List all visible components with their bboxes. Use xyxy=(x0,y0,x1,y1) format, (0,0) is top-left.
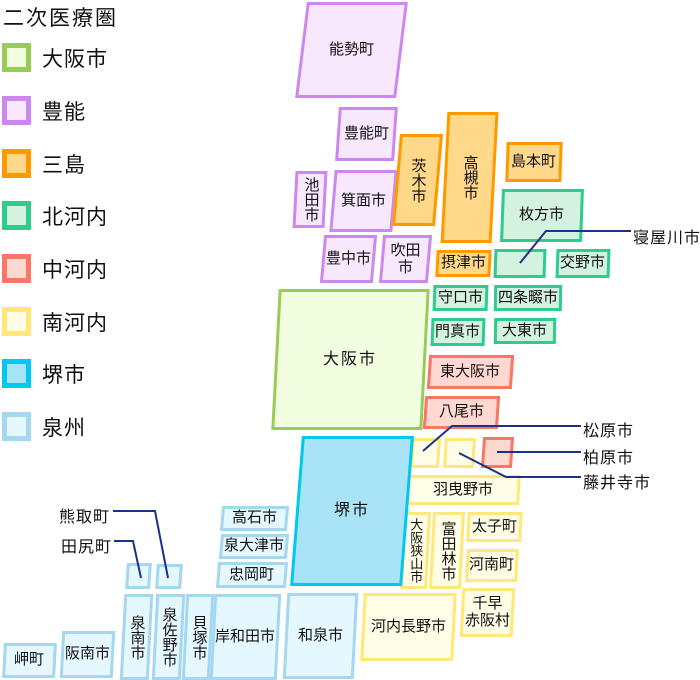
municipality-label: 枚方市 xyxy=(519,207,564,224)
municipality-label: 泉南市 xyxy=(128,615,145,660)
municipality-shimamoto[interactable]: 島本町 xyxy=(505,142,562,182)
municipality-takaishi[interactable]: 高石市 xyxy=(220,506,289,531)
municipality-label: 豊中市 xyxy=(326,251,371,268)
municipality-label: 貝塚市 xyxy=(190,615,207,660)
municipality-habikino[interactable]: 羽曳野市 xyxy=(406,475,521,505)
municipality-katano[interactable]: 交野市 xyxy=(555,249,610,278)
legend-swatch-osaka xyxy=(2,43,31,72)
legend-item-nakakawachi: 中河内 xyxy=(2,254,108,283)
municipality-label: 豊能町 xyxy=(344,126,389,143)
municipality-izumisano[interactable]: 泉佐野市 xyxy=(152,594,186,680)
municipality-label: 四条畷市 xyxy=(498,290,558,307)
municipality-label: 門真市 xyxy=(435,324,480,341)
callout-label-kashiwara: 柏原市 xyxy=(583,444,634,468)
legend-label: 大阪市 xyxy=(42,43,108,73)
legend-swatch-toyono xyxy=(2,96,31,125)
municipality-fujiidera[interactable] xyxy=(443,438,476,468)
municipality-settsu[interactable]: 摂津市 xyxy=(435,250,491,277)
municipality-label: 忠岡町 xyxy=(229,567,274,584)
municipality-kashiwara[interactable] xyxy=(481,437,514,468)
municipality-daito[interactable]: 大東市 xyxy=(494,318,556,344)
municipality-label: 箕面市 xyxy=(341,193,386,210)
municipality-shijonawate[interactable]: 四条畷市 xyxy=(494,285,562,311)
municipality-neyagawa[interactable] xyxy=(493,249,546,278)
municipality-osaka-city[interactable]: 大阪市 xyxy=(271,289,429,430)
municipality-minoh[interactable]: 箕面市 xyxy=(329,170,397,232)
municipality-label: 八尾市 xyxy=(439,404,484,421)
legend-label: 三島 xyxy=(42,149,86,179)
municipality-label: 能勢町 xyxy=(329,42,374,59)
legend-swatch-sakai xyxy=(2,359,31,388)
legend-item-osaka: 大阪市 xyxy=(2,43,108,72)
municipality-label: 太子町 xyxy=(472,519,517,536)
municipality-hirakata[interactable]: 枚方市 xyxy=(500,189,584,242)
municipality-label: 羽曳野市 xyxy=(433,482,493,499)
legend-swatch-mishima xyxy=(2,149,31,178)
municipality-sakai-city[interactable]: 堺市 xyxy=(290,436,414,586)
legend-item-kitakawachi: 北河内 xyxy=(2,201,108,230)
legend-label: 堺市 xyxy=(42,359,86,389)
municipality-kumatori[interactable] xyxy=(155,564,183,589)
municipality-label: 池田市 xyxy=(302,177,319,222)
municipality-kawachinagano[interactable]: 河内長野市 xyxy=(360,593,457,661)
municipality-label: 河内長野市 xyxy=(371,619,446,636)
legend-label: 中河内 xyxy=(42,254,108,284)
municipality-label: 守口市 xyxy=(438,290,483,307)
municipality-ibaraki[interactable]: 茨木市 xyxy=(392,134,443,226)
municipality-label: 富田林市 xyxy=(439,521,456,581)
callout-label-fujiidera: 藤井寺市 xyxy=(583,469,651,493)
municipality-taishi[interactable]: 太子町 xyxy=(466,512,523,542)
municipality-kadoma[interactable]: 門真市 xyxy=(431,318,486,346)
municipality-matsubara[interactable] xyxy=(410,438,441,468)
callout-label-tajiri: 田尻町 xyxy=(61,533,112,557)
legend-label: 北河内 xyxy=(42,201,108,231)
municipality-label: 岬町 xyxy=(14,652,44,669)
municipality-chihayaakasaka[interactable]: 千早 赤阪村 xyxy=(460,588,516,637)
municipality-label: 千早 赤阪村 xyxy=(465,596,510,629)
municipality-tajiri[interactable] xyxy=(125,563,152,589)
municipality-label: 堺市 xyxy=(334,502,370,520)
municipality-label: 吹田市 xyxy=(384,243,427,276)
municipality-tadaoka[interactable]: 忠岡町 xyxy=(216,562,288,588)
municipality-kishiwada[interactable]: 岸和田市 xyxy=(210,594,282,680)
municipality-label: 島本町 xyxy=(511,154,556,171)
legend-item-sakai: 堺市 xyxy=(2,359,86,388)
legend-item-minamikawachi: 南河内 xyxy=(2,307,108,336)
municipality-label: 和泉市 xyxy=(298,628,343,645)
municipality-label: 摂津市 xyxy=(441,255,486,272)
municipality-toyono-cho[interactable]: 豊能町 xyxy=(335,107,398,161)
callout-label-kumatori: 熊取町 xyxy=(59,503,110,527)
municipality-yao[interactable]: 八尾市 xyxy=(423,396,500,429)
municipality-kanan[interactable]: 河南町 xyxy=(465,549,519,582)
municipality-label: 泉大津市 xyxy=(224,538,284,555)
legend-label: 南河内 xyxy=(42,307,108,337)
legend-swatch-kitakawachi xyxy=(2,201,31,230)
municipality-label: 岸和田市 xyxy=(215,629,275,646)
municipality-label: 高槻市 xyxy=(461,155,478,200)
legend-title: 二次医療圏 xyxy=(3,2,118,32)
municipality-label: 東大阪市 xyxy=(440,364,500,381)
municipality-label: 河南町 xyxy=(469,557,514,574)
municipality-suita[interactable]: 吹田市 xyxy=(379,235,432,283)
municipality-label: 阪南市 xyxy=(65,646,110,663)
municipality-higashiosaka[interactable]: 東大阪市 xyxy=(427,355,514,389)
legend-label: 泉州 xyxy=(42,412,86,442)
legend-item-toyono: 豊能 xyxy=(2,96,86,125)
municipality-takatsuki[interactable]: 高槻市 xyxy=(441,112,499,243)
legend-item-senshu: 泉州 xyxy=(2,412,86,441)
municipality-misaki[interactable]: 岬町 xyxy=(2,643,57,678)
municipality-hannan[interactable]: 阪南市 xyxy=(60,631,115,678)
municipality-sennan[interactable]: 泉南市 xyxy=(120,594,154,680)
osaka-medical-zone-map: 二次医療圏 大阪市 豊能 三島 北河内 中河内 南河内 堺市 泉州 能勢町 豊能… xyxy=(0,0,700,677)
callout-label-neyagawa: 寝屋川市 xyxy=(633,224,700,248)
municipality-label: 大阪狭山市 xyxy=(408,518,422,583)
municipality-label: 大阪市 xyxy=(323,351,377,369)
legend-swatch-nakakawachi xyxy=(2,254,31,283)
legend-swatch-senshu xyxy=(2,412,31,441)
legend-swatch-minamikawachi xyxy=(2,307,31,336)
municipality-nose[interactable]: 能勢町 xyxy=(295,2,408,98)
municipality-tondabayashi[interactable]: 富田林市 xyxy=(429,512,465,589)
municipality-moriguchi[interactable]: 守口市 xyxy=(433,285,489,311)
municipality-label: 高石市 xyxy=(232,510,277,527)
callout-line-fujiidera xyxy=(459,453,581,477)
callout-label-matsubara: 松原市 xyxy=(583,417,634,441)
legend-label: 豊能 xyxy=(42,96,86,126)
municipality-label: 大東市 xyxy=(502,323,547,340)
municipality-label: 交野市 xyxy=(560,255,605,272)
municipality-label: 泉佐野市 xyxy=(160,607,177,667)
municipality-izumi[interactable]: 和泉市 xyxy=(283,593,359,679)
municipality-izumiotsu[interactable]: 泉大津市 xyxy=(219,534,289,559)
municipality-ikeda[interactable]: 池田市 xyxy=(293,171,328,228)
municipality-toyonaka[interactable]: 豊中市 xyxy=(320,235,377,283)
legend-item-mishima: 三島 xyxy=(2,149,86,178)
municipality-label: 茨木市 xyxy=(409,158,426,203)
